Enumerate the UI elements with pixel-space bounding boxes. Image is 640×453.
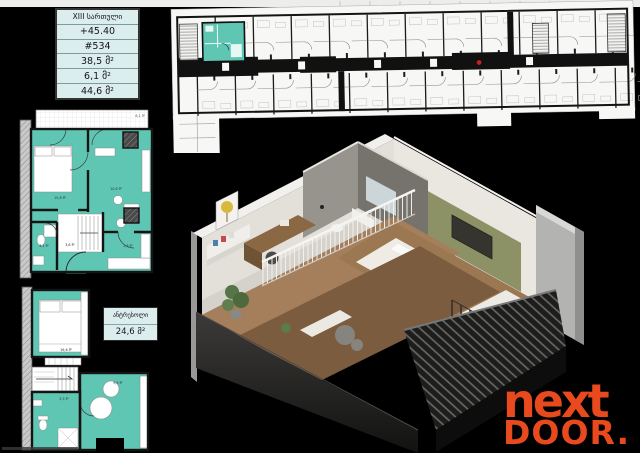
info-elevation: +45.40 bbox=[57, 25, 138, 40]
radiator bbox=[45, 358, 81, 365]
area-label: 16,6 მ² bbox=[60, 348, 72, 352]
area-label: 4,1 მ² bbox=[39, 244, 49, 248]
logo-line2: DOOR. bbox=[503, 418, 638, 447]
bed bbox=[39, 300, 83, 352]
highlighted-unit bbox=[202, 22, 245, 62]
presentation-canvas: 6,1 მ² bbox=[0, 0, 640, 453]
ottoman bbox=[351, 339, 363, 351]
area-label: 3,3 მ² bbox=[59, 397, 69, 401]
side-panel-edge bbox=[575, 227, 584, 345]
area-label: 2,6 მ² bbox=[123, 244, 133, 248]
unit-floor-plans: 6,1 მ² bbox=[0, 100, 168, 453]
area-label: 10,6 მ² bbox=[110, 187, 122, 191]
shaft bbox=[124, 208, 139, 223]
info-unit-number: #534 bbox=[57, 40, 138, 55]
core-wall bbox=[22, 287, 32, 450]
main-level-plan: 6,1 მ² bbox=[20, 110, 152, 278]
stair-core bbox=[532, 23, 549, 53]
shaft bbox=[123, 132, 138, 148]
info-area-balcony: 6,1 მ² bbox=[57, 69, 138, 84]
unit-info-table: XIII სართული +45.40 #534 38,5 მ² 6,1 მ² … bbox=[55, 8, 140, 100]
sheet-extension bbox=[599, 107, 635, 119]
wardrobe bbox=[81, 292, 88, 355]
plant bbox=[281, 323, 291, 333]
info-area-living: 38,5 მ² bbox=[57, 54, 138, 69]
plan-notch bbox=[96, 438, 124, 452]
core-wall bbox=[20, 120, 31, 278]
stairs bbox=[32, 367, 78, 391]
brand-logo: next DOOR. bbox=[503, 385, 638, 447]
area-label: 9,9 მ² bbox=[113, 381, 123, 385]
area-label: 6,1 მ² bbox=[135, 114, 145, 118]
corner-stamp bbox=[2, 447, 78, 450]
area-label: 15,6 მ² bbox=[54, 196, 66, 200]
mezzanine-label-box: ანტრესოლი 24,6 მ² bbox=[103, 307, 158, 341]
mezzanine-area: 24,6 მ² bbox=[104, 324, 157, 341]
area-label: 3,6 მ² bbox=[65, 243, 75, 247]
stair-core bbox=[179, 24, 198, 60]
fixture bbox=[320, 205, 324, 209]
terrace bbox=[36, 110, 148, 129]
info-area-total: 44,6 მ² bbox=[57, 84, 138, 98]
mezzanine-title: ანტრესოლი bbox=[104, 308, 157, 324]
info-floor: XIII სართული bbox=[57, 10, 138, 25]
stair-core bbox=[607, 14, 626, 52]
